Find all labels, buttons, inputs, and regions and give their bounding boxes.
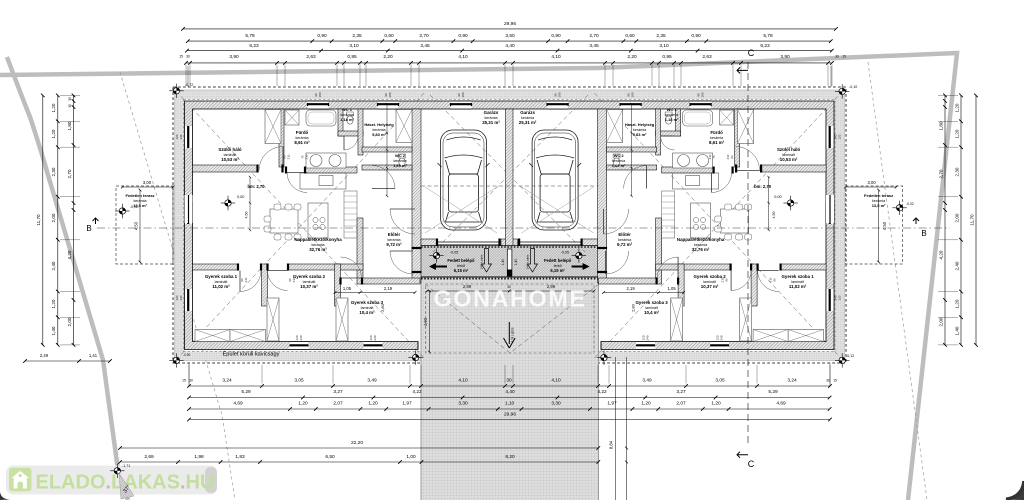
svg-text:25,31 m²: 25,31 m² [519,120,537,125]
svg-text:-0,05: -0,05 [450,251,458,255]
svg-text:1,20: 1,20 [298,401,308,407]
svg-text:1,69 m²: 1,69 m² [393,163,407,168]
svg-text:1,20: 1,20 [641,401,651,407]
svg-text:10,4 m²: 10,4 m² [644,310,660,315]
svg-text:32,76 m²: 32,76 m² [309,247,327,252]
svg-text:90: 90 [773,278,777,282]
svg-text:2,07: 2,07 [333,401,343,407]
svg-text:WC 1: WC 1 [667,107,678,112]
svg-text:240: 240 [834,295,838,300]
svg-text:2,00: 2,00 [67,317,72,326]
svg-text:4,10: 4,10 [458,54,468,60]
svg-text:8,20: 8,20 [505,454,515,460]
svg-text:1,40: 1,40 [501,259,505,266]
svg-text:9,72 m²: 9,72 m² [617,242,633,247]
svg-text:10,37 m²: 10,37 m² [300,284,318,289]
svg-text:180: 180 [558,92,562,97]
svg-text:bm: 2,70: bm: 2,70 [754,184,772,189]
svg-text:240: 240 [834,134,838,139]
svg-text:180: 180 [631,92,635,97]
svg-text:1,18 m²: 1,18 m² [665,117,679,122]
svg-text:240: 240 [373,335,377,340]
svg-text:4,50: 4,50 [882,221,887,230]
svg-text:15: 15 [182,379,186,383]
svg-text:B: B [86,224,91,233]
svg-text:8,61 m²: 8,61 m² [709,140,725,145]
svg-text:9,72 m²: 9,72 m² [386,242,402,247]
svg-text:5,29: 5,29 [241,389,251,395]
svg-text:1,80: 1,80 [67,121,72,130]
svg-text:210: 210 [287,154,291,159]
svg-text:3,45: 3,45 [589,43,599,49]
svg-text:-0,02: -0,02 [906,202,914,206]
svg-text:1,18 m²: 1,18 m² [340,117,354,122]
svg-text:C: C [748,48,755,58]
svg-text:1,80: 1,80 [939,121,944,130]
svg-text:2,63: 2,63 [306,54,316,60]
svg-text:4,69: 4,69 [233,401,243,407]
svg-text:210: 210 [292,277,296,282]
svg-text:240: 240 [720,335,724,340]
svg-text:0,00: 0,00 [237,195,244,199]
svg-text:11,70: 11,70 [970,214,975,226]
svg-text:2,30: 2,30 [51,167,56,176]
svg-text:0,90: 0,90 [317,33,327,39]
svg-text:0,90: 0,90 [551,33,561,39]
svg-text:Gyerek szoba 3: Gyerek szoba 3 [635,300,668,305]
svg-text:22,20: 22,20 [351,440,363,446]
svg-text:2,07: 2,07 [676,401,686,407]
svg-text:-0,90: -0,90 [183,353,190,357]
svg-text:2,49: 2,49 [40,353,49,358]
svg-text:Garázs: Garázs [520,110,535,115]
svg-text:1,40: 1,40 [955,326,960,335]
svg-text:2,20: 2,20 [627,54,637,60]
svg-text:2,80: 2,80 [631,303,636,312]
svg-text:Nappali/étkező/konyha: Nappali/étkező/konyha [677,237,725,242]
svg-text:30: 30 [835,55,839,59]
svg-text:-1,71: -1,71 [122,464,130,468]
svg-text:4,40: 4,40 [505,43,515,49]
svg-text:210: 210 [726,154,730,159]
svg-text:210: 210 [769,277,773,282]
svg-text:-0,02: -0,02 [130,205,138,209]
svg-text:30: 30 [506,378,512,384]
svg-text:240: 240 [179,295,183,300]
svg-text:Előtér: Előtér [388,232,401,237]
svg-text:2,19: 2,19 [384,286,393,291]
svg-text:5,29: 5,29 [768,389,778,395]
svg-text:2,70: 2,70 [67,169,72,178]
svg-text:5,83 m²: 5,83 m² [633,132,647,137]
svg-text:1,00: 1,00 [406,454,416,460]
svg-text:1,05: 1,05 [343,286,352,291]
svg-text:4,10: 4,10 [551,378,561,384]
svg-text:180: 180 [461,92,465,97]
svg-text:4,22: 4,22 [597,389,607,395]
svg-text:1,41: 1,41 [89,353,98,358]
svg-text:-0,12: -0,12 [846,354,854,358]
svg-text:1,20: 1,20 [711,401,721,407]
svg-text:180: 180 [388,92,392,97]
svg-text:0,90: 0,90 [691,33,701,39]
svg-text:4,20: 4,20 [67,250,72,259]
svg-text:2,35: 2,35 [352,33,362,39]
svg-text:2,69: 2,69 [144,454,154,460]
svg-text:4,69: 4,69 [776,401,786,407]
svg-text:3,10: 3,10 [659,43,669,49]
svg-text:6,23: 6,23 [249,43,259,49]
svg-text:180: 180 [701,92,705,97]
svg-text:3,50: 3,50 [505,33,515,39]
svg-text:Szülői háló: Szülői háló [777,147,800,152]
svg-text:-0,72: -0,72 [185,83,193,87]
svg-text:6,50: 6,50 [325,454,335,460]
svg-text:240: 240 [646,335,650,340]
svg-text:15: 15 [179,55,183,59]
svg-text:-0,05: -0,05 [561,251,569,255]
svg-text:3,24: 3,24 [787,378,797,384]
svg-text:2,40: 2,40 [51,261,56,270]
svg-text:3,90: 3,90 [780,54,790,60]
svg-text:32,76 m²: 32,76 m² [692,247,710,252]
svg-text:210: 210 [708,154,712,159]
svg-text:10,53 m²: 10,53 m² [221,157,239,162]
svg-text:15: 15 [833,379,837,383]
svg-text:C: C [748,459,755,469]
svg-text:Előtér: Előtér [618,232,631,237]
svg-text:3,30: 3,30 [458,401,468,407]
svg-text:13,5 m²: 13,5 m² [872,203,886,208]
svg-text:2,00: 2,00 [955,213,960,222]
svg-text:4,10: 4,10 [458,378,468,384]
svg-text:4,40: 4,40 [505,389,515,395]
svg-text:3,45: 3,45 [420,43,430,49]
svg-text:3,10: 3,10 [349,43,359,49]
svg-text:1,10: 1,10 [505,401,515,407]
svg-text:3,49: 3,49 [642,378,652,384]
svg-text:120: 120 [838,134,842,139]
svg-text:1,20: 1,20 [955,299,960,308]
svg-text:0,60: 0,60 [384,33,394,39]
svg-text:B: B [921,229,926,238]
svg-text:29,96: 29,96 [504,412,516,418]
svg-text:2,00: 2,00 [939,317,944,326]
svg-text:-0,10: -0,10 [849,85,857,89]
svg-text:4,50: 4,50 [245,212,249,219]
svg-text:25,31 m²: 25,31 m² [482,120,500,125]
svg-text:3,00: 3,00 [143,180,152,185]
svg-text:3,05: 3,05 [715,378,725,384]
svg-text:4 % Lejtés: 4 % Lejtés [511,327,515,342]
svg-text:15: 15 [842,55,846,59]
svg-text:3,05: 3,05 [294,378,304,384]
svg-text:0,95: 0,95 [347,54,357,60]
svg-text:5,83 m²: 5,83 m² [372,132,386,137]
svg-text:Szülői háló: Szülői háló [218,147,241,152]
svg-text:Gyerek szoba 3: Gyerek szoba 3 [351,300,384,305]
svg-text:4,10: 4,10 [551,54,561,60]
svg-text:1,20: 1,20 [51,299,56,308]
svg-text:1,20: 1,20 [51,103,56,112]
svg-text:Gyerek szoba 1: Gyerek szoba 1 [205,274,238,279]
svg-text:1,98: 1,98 [194,454,204,460]
svg-text:30: 30 [186,55,190,59]
svg-text:WC 2: WC 2 [614,153,625,158]
svg-text:4,20: 4,20 [939,250,944,259]
svg-text:4,50: 4,50 [134,221,139,230]
svg-text:240: 240 [179,134,183,139]
svg-text:0,60: 0,60 [625,33,635,39]
svg-text:Gyerek szoba 2: Gyerek szoba 2 [293,274,326,279]
svg-text:1,20: 1,20 [51,129,56,138]
svg-text:2,00: 2,00 [51,213,56,222]
svg-text:0,00: 0,00 [774,195,781,199]
svg-text:0,90: 0,90 [458,33,468,39]
svg-text:30: 30 [68,97,72,101]
svg-text:GONAHOME: GONAHOME [434,286,587,312]
svg-text:1,20: 1,20 [955,129,960,138]
svg-text:WC 1: WC 1 [342,107,353,112]
svg-text:3,27: 3,27 [333,389,343,395]
svg-text:Nappali/étkező/konyha: Nappali/étkező/konyha [294,237,342,242]
svg-text:1,40: 1,40 [514,259,518,266]
svg-text:10,4 m²: 10,4 m² [359,310,375,315]
svg-text:1,69 m²: 1,69 m² [612,163,626,168]
svg-text:14% Lejtés: 14% Lejtés [480,254,484,269]
svg-text:29,96: 29,96 [504,21,516,27]
svg-text:3,24: 3,24 [222,378,232,384]
svg-text:90: 90 [730,155,734,159]
svg-text:3,30: 3,30 [551,401,561,407]
svg-text:2,19: 2,19 [627,286,636,291]
svg-text:1,20: 1,20 [955,103,960,112]
svg-text:Gyerek szoba 1: Gyerek szoba 1 [781,274,814,279]
svg-text:90: 90 [725,278,729,282]
svg-text:2,70: 2,70 [589,33,599,39]
svg-text:3,90: 3,90 [229,54,239,60]
svg-text:Fürdő: Fürdő [296,130,309,135]
svg-text:1,97: 1,97 [402,401,412,407]
svg-text:3,00: 3,00 [868,180,877,185]
svg-text:2,70: 2,70 [419,33,429,39]
svg-text:210: 210 [305,154,309,159]
svg-text:11,02 m²: 11,02 m² [789,284,807,289]
svg-text:Garázs: Garázs [484,110,499,115]
svg-text:Fedett belépő: Fedett belépő [544,258,572,263]
svg-text:30: 30 [189,379,193,383]
svg-text:15: 15 [68,104,72,108]
svg-text:1,20: 1,20 [368,401,378,407]
svg-text:3,49: 3,49 [367,378,377,384]
svg-text:2,70: 2,70 [939,169,944,178]
svg-text:Épület körüli kavicságy: Épület körüli kavicságy [223,351,280,358]
svg-text:8,61 m²: 8,61 m² [294,140,310,145]
svg-text:180: 180 [318,92,322,97]
svg-text:2,30: 2,30 [955,167,960,176]
svg-text:210: 210 [244,277,248,282]
svg-text:WC 2: WC 2 [395,153,406,158]
svg-text:1,40: 1,40 [51,326,56,335]
svg-text:6,15 m²: 6,15 m² [454,268,469,273]
svg-text:Hászt. Helyiség: Hászt. Helyiség [364,122,394,127]
svg-text:10,53 m²: 10,53 m² [780,157,798,162]
svg-text:11,70: 11,70 [36,214,41,226]
svg-text:210: 210 [721,277,725,282]
svg-text:14% Lejtés: 14% Lejtés [526,254,530,269]
svg-text:120: 120 [838,295,842,300]
svg-text:30: 30 [826,379,830,383]
svg-text:1,83: 1,83 [235,454,245,460]
svg-text:8,84: 8,84 [609,440,614,449]
svg-text:Fedett belépő: Fedett belépő [447,258,475,263]
svg-text:6,23: 6,23 [760,43,770,49]
svg-text:3,27: 3,27 [676,389,686,395]
svg-text:2,80: 2,80 [380,303,385,312]
svg-text:75: 75 [712,155,716,159]
svg-text:6,15 m²: 6,15 m² [550,268,565,273]
svg-text:2,35: 2,35 [656,33,666,39]
svg-text:2,40: 2,40 [955,261,960,270]
svg-text:4,50: 4,50 [772,212,776,219]
svg-text:1,05: 1,05 [668,286,677,291]
svg-text:0,95: 0,95 [662,54,672,60]
svg-text:240: 240 [299,335,303,340]
svg-text:10,37 m²: 10,37 m² [701,284,719,289]
svg-text:Hászt. Helyiség: Hászt. Helyiség [625,122,655,127]
svg-text:11,02 m²: 11,02 m² [212,284,230,289]
svg-text:2,63: 2,63 [702,54,712,60]
svg-text:4,22: 4,22 [412,389,422,395]
svg-text:5,78: 5,78 [245,33,255,39]
svg-text:5,78: 5,78 [763,33,773,39]
svg-text:Fürdő: Fürdő [710,130,723,135]
svg-text:2,20: 2,20 [383,54,393,60]
